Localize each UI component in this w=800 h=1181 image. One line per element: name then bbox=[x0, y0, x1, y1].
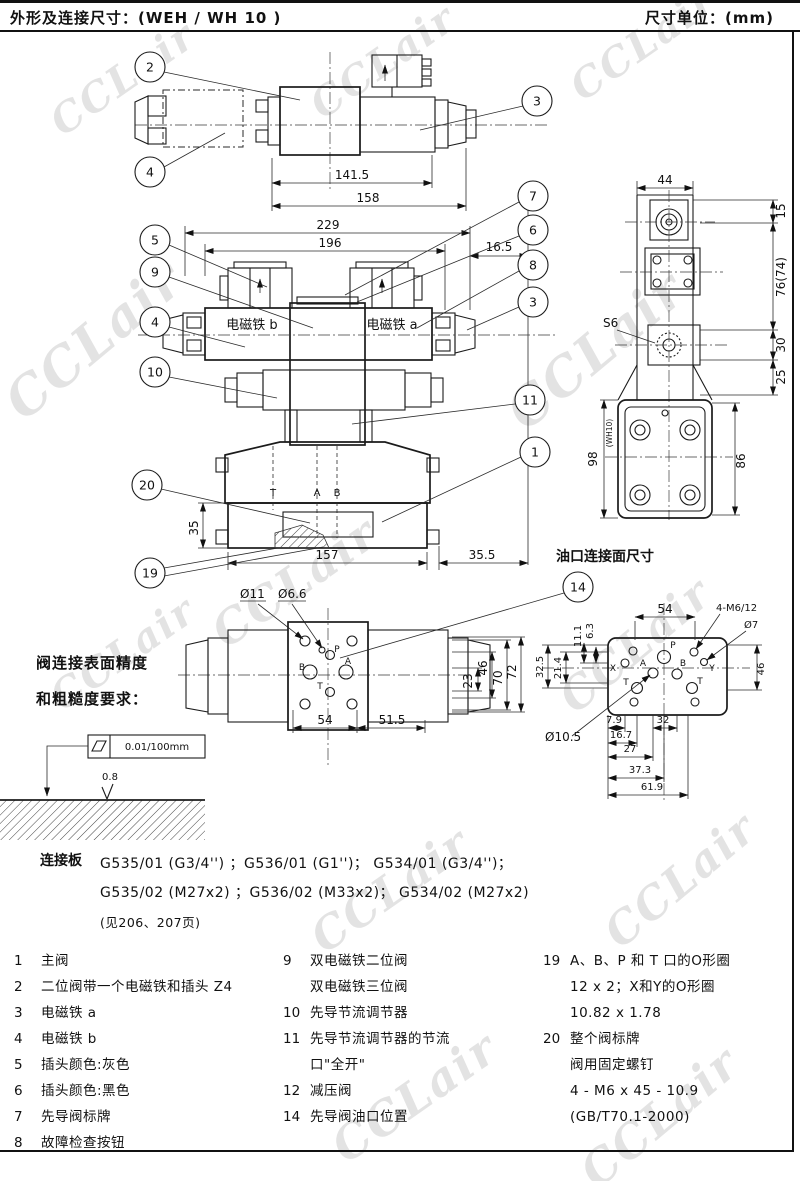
list-item: 3电磁铁 a bbox=[14, 1000, 279, 1026]
svg-text:Ø7: Ø7 bbox=[744, 619, 758, 631]
svg-text:27: 27 bbox=[624, 744, 637, 755]
svg-text:7: 7 bbox=[529, 189, 537, 204]
svg-text:4-M6/12: 4-M6/12 bbox=[716, 603, 757, 614]
port-face-title: 油口连接面尺寸 bbox=[556, 546, 654, 566]
parts-list-col3: 19A、B、P 和 T 口的O形圈 12 x 2；X和Y的O形圈 10.82 x… bbox=[543, 948, 788, 1130]
svg-text:25: 25 bbox=[774, 369, 788, 384]
port-a-label: A bbox=[314, 488, 321, 499]
port-p-label: P bbox=[334, 645, 340, 655]
svg-text:3: 3 bbox=[529, 295, 537, 310]
svg-text:Ø10.5: Ø10.5 bbox=[545, 730, 581, 744]
svg-text:7.9: 7.9 bbox=[606, 715, 622, 726]
roughness-symbol: 0.8 bbox=[102, 772, 118, 799]
port-plate bbox=[608, 638, 727, 715]
svg-text:4: 4 bbox=[151, 315, 159, 330]
svg-text:16.7: 16.7 bbox=[610, 730, 632, 741]
svg-text:46: 46 bbox=[476, 660, 490, 675]
valve-body-bottom bbox=[186, 622, 490, 730]
port-face-drawing: P A B X Y T T 54 4-M6/12 Ø7 32.5 21.4 bbox=[540, 595, 795, 810]
valve-body bbox=[256, 87, 476, 155]
port-a-label: A bbox=[640, 659, 647, 669]
solenoid-a-label: 电磁铁 a bbox=[366, 318, 417, 333]
top-border bbox=[0, 0, 800, 3]
port-y-label: Y bbox=[708, 664, 715, 674]
dimensions-top: 54 4-M6/12 Ø7 bbox=[635, 602, 758, 660]
svg-text:0.01/100mm: 0.01/100mm bbox=[125, 742, 189, 753]
svg-text:86: 86 bbox=[734, 453, 748, 468]
dimensions-left: 32.5 21.4 11.1 6.3 bbox=[535, 623, 608, 688]
surface-note-line1: 阀连接表面精度 bbox=[36, 652, 148, 673]
svg-text:23: 23 bbox=[461, 673, 475, 688]
port-t-label: T bbox=[269, 488, 277, 499]
centerlines bbox=[605, 190, 733, 520]
svg-text:37.3: 37.3 bbox=[629, 765, 651, 776]
svg-text:3: 3 bbox=[533, 94, 541, 109]
port-b-label: B bbox=[299, 663, 305, 673]
pilot-valve-body bbox=[163, 297, 475, 445]
svg-text:54: 54 bbox=[657, 602, 672, 616]
plate-note-label: 连接板 bbox=[40, 850, 100, 937]
balloon-7: 7 bbox=[345, 181, 548, 295]
svg-text:46: 46 bbox=[756, 663, 767, 676]
side-body bbox=[637, 195, 700, 400]
s6-label: S6 bbox=[603, 316, 618, 330]
svg-text:70: 70 bbox=[491, 670, 505, 685]
dimensions-width: 44 bbox=[637, 173, 693, 200]
parts-list-col2: 9双电磁铁二位阀 双电磁铁三位阀 10先导节流调节器 11先导节流调节器的节流 … bbox=[283, 948, 533, 1130]
header-divider bbox=[0, 30, 800, 32]
svg-text:196: 196 bbox=[319, 236, 342, 250]
plate-note-line3: (见206、207页) bbox=[100, 908, 529, 937]
svg-text:(WH10): (WH10) bbox=[605, 419, 614, 448]
plate-note-line1: G535/01 (G3/4'') ；G536/01 (G1'')； G534/0… bbox=[100, 850, 529, 879]
svg-text:8: 8 bbox=[529, 258, 537, 273]
svg-text:32.5: 32.5 bbox=[535, 656, 546, 678]
surface-note-line2: 和粗糙度要求： bbox=[36, 688, 148, 709]
svg-text:1: 1 bbox=[531, 445, 539, 460]
plug-connector bbox=[372, 55, 431, 97]
list-item: 14先导阀油口位置 bbox=[283, 1104, 533, 1130]
balloon-2: 2 bbox=[135, 52, 300, 100]
svg-text:9: 9 bbox=[151, 265, 159, 280]
list-item: 6插头颜色:黑色 bbox=[14, 1078, 279, 1104]
svg-text:16.5: 16.5 bbox=[486, 240, 513, 254]
front-view-drawing: 229 196 16.5 bbox=[130, 180, 570, 586]
detached-solenoid-outline bbox=[135, 90, 243, 147]
page-title: 外形及连接尺寸：(WEH / WH 10 ) bbox=[10, 7, 281, 28]
list-item: 9双电磁铁二位阀 双电磁铁三位阀 bbox=[283, 948, 533, 1000]
port-t1-label: T bbox=[622, 678, 629, 688]
dimension-chain-right: 15 76(74) 30 25 bbox=[693, 200, 788, 395]
dimensions-right: 46 bbox=[727, 645, 767, 690]
list-item: 10先导节流调节器 bbox=[283, 1000, 533, 1026]
svg-text:6.3: 6.3 bbox=[585, 623, 596, 639]
balloon-11: 11 bbox=[352, 385, 545, 424]
ground-hatch bbox=[0, 800, 205, 840]
parts-list-col1: 1主阀 2二位阀带一个电磁铁和插头 Z4 3电磁铁 a 4电磁铁 b 5插头颜色… bbox=[14, 948, 279, 1156]
list-item: 11先导节流调节器的节流 口"全开" bbox=[283, 1026, 533, 1078]
main-valve-body bbox=[216, 442, 439, 548]
port-t-label: T bbox=[316, 682, 323, 692]
svg-text:20: 20 bbox=[139, 478, 155, 493]
watermark: CCLair bbox=[595, 803, 767, 959]
dimensions-bottom: 7.9 32 16.7 27 37.3 61.9 Ø10.5 bbox=[545, 675, 688, 799]
svg-text:15: 15 bbox=[774, 203, 788, 218]
port-b-label: B bbox=[334, 488, 341, 499]
solenoid-b-label: 电磁铁 b bbox=[226, 318, 277, 333]
unit-label: 尺寸单位：(mm) bbox=[645, 7, 774, 28]
svg-text:98: 98 bbox=[586, 451, 600, 466]
list-item: 5插头颜色:灰色 bbox=[14, 1052, 279, 1078]
throttle-assembly bbox=[225, 370, 443, 442]
svg-text:30: 30 bbox=[774, 337, 788, 352]
list-item: 4电磁铁 b bbox=[14, 1026, 279, 1052]
balloon-3: 3 bbox=[420, 86, 552, 130]
side-view-drawing: 44 S6 bbox=[595, 175, 795, 525]
list-item: 7先导阀标牌 bbox=[14, 1104, 279, 1130]
svg-text:21.4: 21.4 bbox=[553, 657, 564, 679]
svg-text:19: 19 bbox=[142, 566, 158, 581]
svg-text:11.1: 11.1 bbox=[573, 625, 584, 647]
svg-text:6: 6 bbox=[529, 223, 537, 238]
svg-text:54: 54 bbox=[317, 713, 332, 727]
svg-text:10: 10 bbox=[147, 365, 163, 380]
svg-text:5: 5 bbox=[151, 233, 159, 248]
list-item: 8故障检查按钮 bbox=[14, 1130, 279, 1156]
balloon-1: 1 bbox=[382, 437, 550, 522]
svg-text:72: 72 bbox=[505, 664, 519, 679]
list-item: 1主阀 bbox=[14, 948, 279, 974]
port-p-label: P bbox=[670, 641, 676, 651]
svg-text:14: 14 bbox=[570, 580, 586, 595]
flatness-frame: 0.01/100mm bbox=[47, 735, 205, 796]
port-x-label: X bbox=[610, 664, 616, 674]
pilot-connectors bbox=[220, 262, 422, 308]
surface-finish-symbol: 0.01/100mm 0.8 bbox=[0, 730, 220, 845]
dimensions-right: 23 46 70 72 bbox=[452, 637, 525, 712]
catalog-page: CCLair CCLair CCLair CCLair CCLair CCLai… bbox=[0, 0, 800, 1181]
svg-text:35: 35 bbox=[187, 520, 201, 535]
svg-text:61.9: 61.9 bbox=[641, 782, 663, 793]
plate-note-line2: G535/02 (M27x2) ；G536/02 (M33x2)； G534/0… bbox=[100, 879, 529, 908]
list-item: 20整个阀标牌 阀用固定螺钉 4 - M6 x 45 - 10.9 (GB/T7… bbox=[543, 1026, 788, 1130]
s6-leader bbox=[617, 330, 655, 343]
svg-text:Ø6.6: Ø6.6 bbox=[278, 587, 307, 601]
svg-text:44: 44 bbox=[657, 173, 672, 187]
port-b-label: B bbox=[680, 659, 686, 669]
list-item: 12减压阀 bbox=[283, 1078, 533, 1104]
svg-text:4: 4 bbox=[146, 165, 154, 180]
dimensions-flange: 98 (WH10) 86 bbox=[586, 400, 748, 518]
svg-text:Ø11: Ø11 bbox=[240, 587, 265, 601]
svg-text:11: 11 bbox=[522, 393, 538, 408]
svg-text:32: 32 bbox=[657, 715, 670, 726]
centerlines bbox=[178, 608, 470, 765]
port-a-label: A bbox=[345, 657, 352, 667]
list-item: 2二位阀带一个电磁铁和插头 Z4 bbox=[14, 974, 279, 1000]
svg-text:76(74): 76(74) bbox=[774, 257, 788, 297]
svg-text:229: 229 bbox=[317, 218, 340, 232]
svg-text:2: 2 bbox=[146, 60, 154, 75]
balloon-10: 10 bbox=[140, 357, 277, 398]
svg-text:0.8: 0.8 bbox=[102, 772, 118, 783]
list-item: 19A、B、P 和 T 口的O形圈 12 x 2；X和Y的O形圈 10.82 x… bbox=[543, 948, 788, 1026]
svg-text:51.5: 51.5 bbox=[379, 713, 406, 727]
port-t2-label: T bbox=[696, 677, 703, 687]
mounting-flange bbox=[618, 365, 712, 518]
plate-note: 连接板 G535/01 (G3/4'') ；G536/01 (G1'')； G5… bbox=[40, 850, 529, 937]
